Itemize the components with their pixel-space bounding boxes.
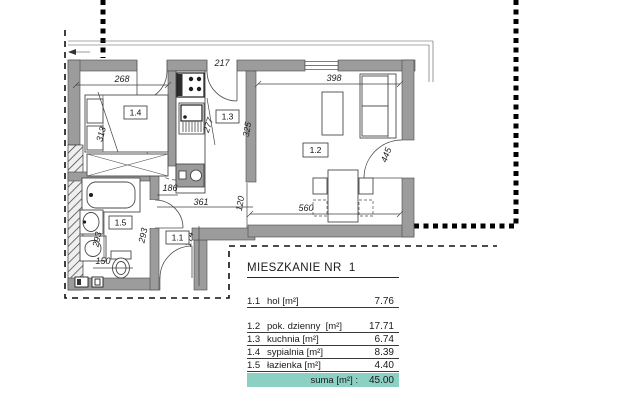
entrance-door xyxy=(160,246,192,278)
room-label-bathroom: 1.5 xyxy=(115,218,127,228)
dim-bedroom-width: 268 xyxy=(113,74,129,84)
table-row: 1.3 kuchnia [m²] 6.74 xyxy=(247,333,399,346)
total-value: 45.00 xyxy=(358,375,399,386)
dim-hall-opening: 120 xyxy=(234,195,246,212)
row-number: 1.3 xyxy=(247,334,267,345)
row-number: 1.5 xyxy=(247,360,267,371)
bathtub xyxy=(82,178,140,212)
row-area: 6.74 xyxy=(358,334,399,345)
apartment-title: MIESZKANIE NR 1 xyxy=(247,262,399,278)
bed xyxy=(85,95,168,152)
row-number: 1.1 xyxy=(247,296,267,307)
total-row: suma [m²] : 45.00 xyxy=(247,373,399,387)
dim-bath-depth-right: 293 xyxy=(136,227,149,245)
dim-kitchen-width: 217 xyxy=(213,58,230,68)
kitchen-appliance xyxy=(176,164,204,187)
room-label-hall: 1.1 xyxy=(172,233,184,243)
row-number: 1.4 xyxy=(247,347,267,358)
dim-bath-width: 150 xyxy=(95,256,110,266)
room-label-living: 1.2 xyxy=(310,145,322,155)
row-name: sypialnia [m²] xyxy=(267,347,358,358)
bathroom-door xyxy=(150,200,184,228)
row-area: 7.76 xyxy=(358,296,399,307)
toilet xyxy=(111,251,131,278)
sideboard xyxy=(322,92,343,135)
area-table: MIESZKANIE NR 1 1.1 hol [m²] 7.76 1.2 po… xyxy=(247,262,399,387)
table-spacer xyxy=(247,308,399,320)
sofa xyxy=(360,74,396,138)
row-number: 1.2 xyxy=(247,321,267,332)
table-row: 1.2 pok. dzienny [m²] 17.71 xyxy=(247,320,399,333)
chair xyxy=(313,200,327,216)
row-name: hol [m²] xyxy=(267,296,358,307)
total-label: suma [m²] : xyxy=(310,375,358,386)
dim-balcony-door: 445 xyxy=(379,145,394,163)
stove xyxy=(177,73,204,97)
row-area: 8.39 xyxy=(358,347,399,358)
dim-living-width: 398 xyxy=(326,73,341,83)
dim-hall-width: 186 xyxy=(162,183,177,193)
window xyxy=(305,62,338,70)
table-row: 1.4 sypialnia [m²] 8.39 xyxy=(247,346,399,359)
bath-sink xyxy=(80,210,103,234)
wardrobe xyxy=(87,154,168,176)
dim-living-bottom: 560 xyxy=(298,203,313,213)
chair xyxy=(313,178,327,194)
dim-hall-length: 361 xyxy=(193,197,208,207)
row-area: 4.40 xyxy=(358,360,399,371)
table-row: 1.5 łazienka [m²] 4.40 xyxy=(247,359,399,372)
row-area: 17.71 xyxy=(358,321,399,332)
kitchen-sink xyxy=(179,103,204,134)
kitchen-door xyxy=(207,71,237,101)
row-name: łazienka [m²] xyxy=(267,360,358,371)
row-name: pok. dzienny [m²] xyxy=(267,321,358,332)
chair xyxy=(359,200,373,216)
room-label-kitchen: 1.3 xyxy=(222,112,234,122)
row-name: kuchnia [m²] xyxy=(267,334,358,345)
room-label-bedroom: 1.4 xyxy=(130,108,142,118)
table-row: 1.1 hol [m²] 7.76 xyxy=(247,295,399,308)
chair xyxy=(359,178,373,194)
